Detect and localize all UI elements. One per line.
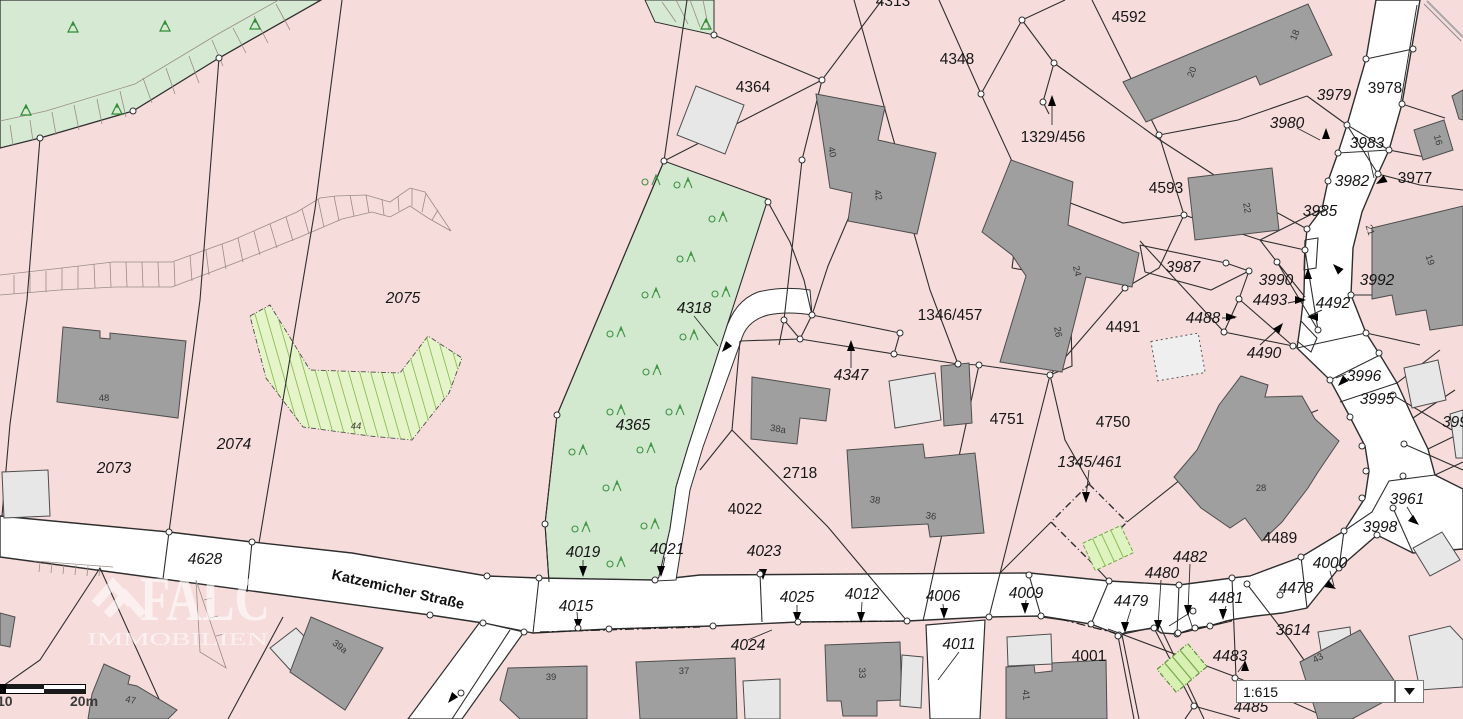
svg-text:4006: 4006 <box>926 588 961 605</box>
svg-text:42: 42 <box>871 189 884 202</box>
svg-text:3996: 3996 <box>1347 368 1382 385</box>
svg-text:4492: 4492 <box>1316 295 1351 312</box>
svg-text:26: 26 <box>1051 326 1064 338</box>
svg-text:4482: 4482 <box>1173 549 1208 566</box>
svg-text:4011: 4011 <box>942 636 975 653</box>
svg-text:22: 22 <box>1240 202 1253 214</box>
svg-text:4348: 4348 <box>940 51 974 68</box>
svg-text:4593: 4593 <box>1149 180 1183 197</box>
svg-text:4313: 4313 <box>876 0 910 10</box>
svg-text:41: 41 <box>1020 689 1032 700</box>
svg-text:1346/457: 1346/457 <box>918 307 983 324</box>
svg-text:4483: 4483 <box>1213 648 1248 665</box>
svg-text:3990: 3990 <box>1259 272 1294 289</box>
svg-text:2075: 2075 <box>385 290 421 307</box>
svg-text:4489: 4489 <box>1263 530 1297 547</box>
svg-text:37: 37 <box>679 666 690 677</box>
svg-text:28: 28 <box>1256 483 1267 494</box>
svg-text:1345/461: 1345/461 <box>1058 454 1123 471</box>
svg-text:10: 10 <box>0 693 13 709</box>
svg-text:4024: 4024 <box>731 637 766 654</box>
svg-text:24: 24 <box>1070 265 1083 278</box>
svg-text:4000: 4000 <box>1313 555 1348 572</box>
svg-text:4478: 4478 <box>1279 580 1314 597</box>
svg-text:3995: 3995 <box>1360 391 1395 408</box>
svg-text:3987: 3987 <box>1166 259 1202 276</box>
svg-text:4025: 4025 <box>780 589 815 606</box>
svg-text:4488: 4488 <box>1186 310 1221 327</box>
svg-text:2074: 2074 <box>216 436 252 453</box>
svg-text:3983: 3983 <box>1350 135 1385 152</box>
svg-text:4750: 4750 <box>1096 414 1131 431</box>
svg-text:39: 39 <box>546 672 557 683</box>
svg-text:3992: 3992 <box>1360 272 1395 289</box>
svg-text:4365: 4365 <box>616 417 651 434</box>
svg-text:3978: 3978 <box>1368 80 1402 97</box>
svg-text:3985: 3985 <box>1303 203 1338 220</box>
svg-text:4023: 4023 <box>747 543 782 560</box>
svg-text:4493: 4493 <box>1253 292 1288 309</box>
svg-text:40: 40 <box>825 146 838 159</box>
svg-text:48: 48 <box>99 393 110 404</box>
svg-text:4022: 4022 <box>728 501 762 518</box>
svg-text:4015: 4015 <box>559 598 594 615</box>
svg-text:4001: 4001 <box>1072 648 1106 665</box>
svg-text:4009: 4009 <box>1009 585 1044 602</box>
svg-text:44: 44 <box>351 421 362 432</box>
svg-text:2718: 2718 <box>783 465 817 482</box>
svg-text:38: 38 <box>869 494 881 506</box>
svg-text:3979: 3979 <box>1317 87 1352 104</box>
svg-text:36: 36 <box>925 510 937 522</box>
svg-text:47: 47 <box>124 694 137 707</box>
svg-text:4318: 4318 <box>677 300 712 317</box>
svg-text:4479: 4479 <box>1114 593 1149 610</box>
svg-text:3998: 3998 <box>1363 519 1398 536</box>
svg-text:4347: 4347 <box>834 367 870 384</box>
svg-text:4012: 4012 <box>845 586 880 603</box>
svg-text:4751: 4751 <box>990 411 1024 428</box>
svg-text:4491: 4491 <box>1106 319 1140 336</box>
svg-text:4592: 4592 <box>1112 9 1146 26</box>
svg-text:4490: 4490 <box>1247 345 1282 362</box>
svg-text:3982: 3982 <box>1335 173 1370 190</box>
svg-text:4480: 4480 <box>1145 565 1180 582</box>
svg-text:3614: 3614 <box>1276 622 1311 639</box>
svg-text:IMMOBILIEN: IMMOBILIEN <box>87 629 268 649</box>
svg-text:4019: 4019 <box>566 544 601 561</box>
svg-text:1329/456: 1329/456 <box>1021 129 1086 146</box>
svg-text:33: 33 <box>856 668 867 679</box>
svg-text:399: 399 <box>1442 414 1463 431</box>
svg-text:4364: 4364 <box>736 79 771 96</box>
svg-text:1:615: 1:615 <box>1243 684 1278 700</box>
svg-text:20m: 20m <box>70 693 98 709</box>
svg-text:3980: 3980 <box>1270 115 1305 132</box>
svg-text:3961: 3961 <box>1390 491 1424 508</box>
svg-text:2073: 2073 <box>96 460 132 477</box>
svg-text:4481: 4481 <box>1209 590 1243 607</box>
svg-text:FALC: FALC <box>140 563 270 634</box>
svg-text:3977: 3977 <box>1398 170 1432 187</box>
svg-text:4021: 4021 <box>650 541 684 558</box>
